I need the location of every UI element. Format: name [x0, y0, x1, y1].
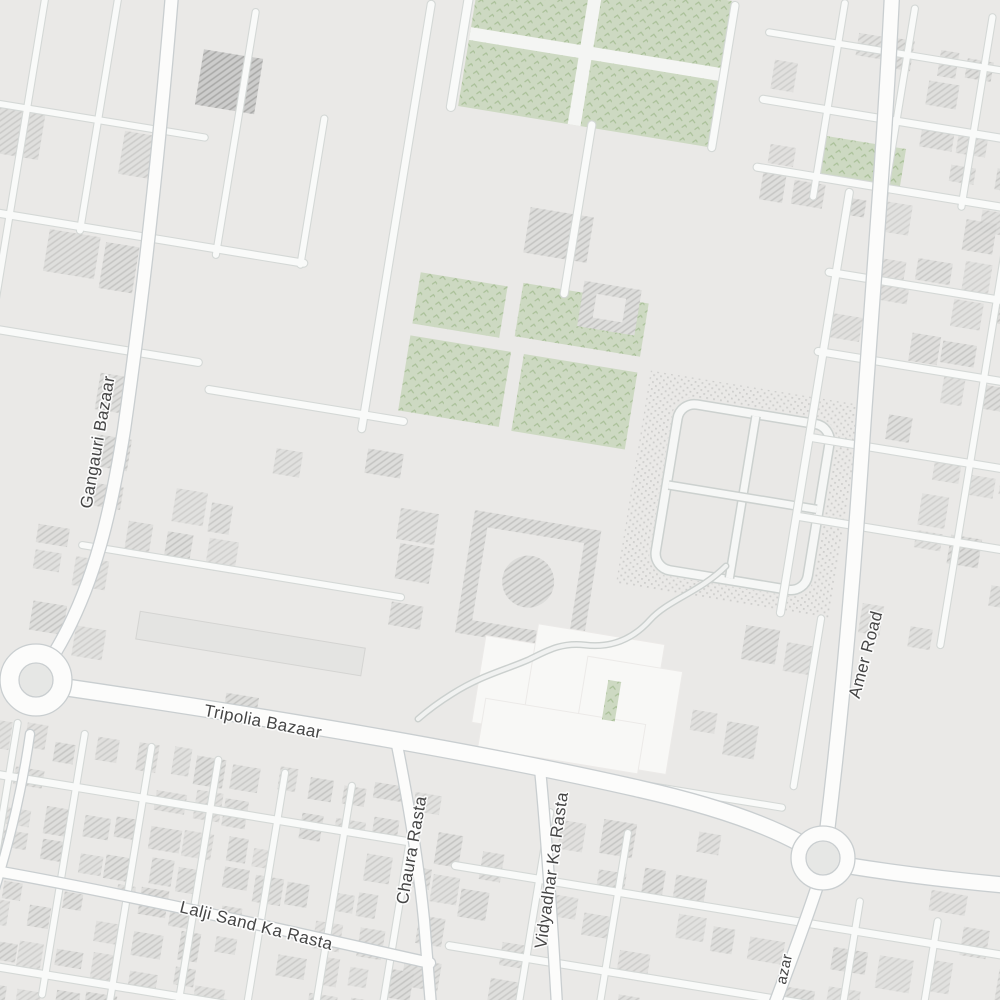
road-label-tripolia-bazaar: Tripolia Bazaar: [202, 701, 323, 742]
roundabout-east: [791, 826, 855, 890]
map-canvas[interactable]: Gangauri Bazaar Tripolia Bazaar Chaura R…: [0, 0, 1000, 1000]
roundabouts-layer: [0, 644, 855, 890]
map-viewport[interactable]: Gangauri Bazaar Tripolia Bazaar Chaura R…: [0, 0, 1000, 1000]
roundabout-west: [0, 644, 72, 716]
